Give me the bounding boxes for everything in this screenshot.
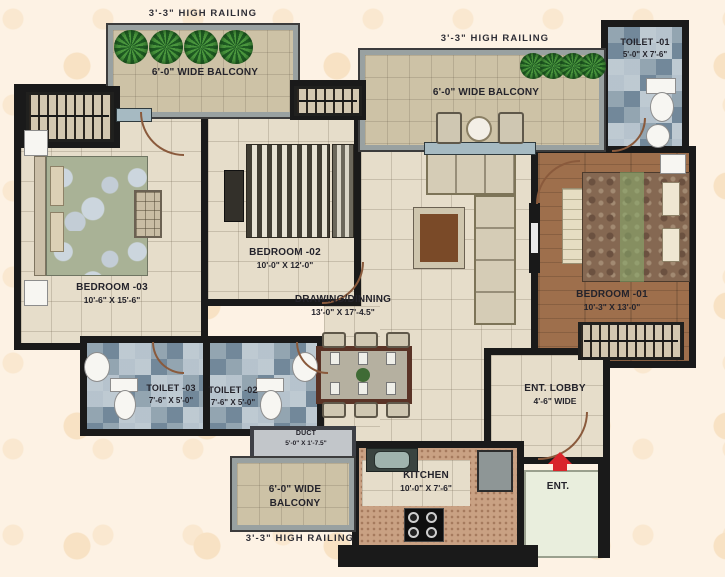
room-name: 6'-0" WIDE BALCONY <box>120 66 290 80</box>
bed-bedroom-02 <box>246 144 330 238</box>
stove-burner <box>408 527 419 538</box>
plate <box>330 382 340 395</box>
room-name: TOILET -01 <box>605 36 685 49</box>
room-name: 6'-0" WIDE <box>243 483 347 497</box>
room-name: DRAWING/DINNING <box>268 293 418 307</box>
label-duct: DUCT 5'-0" X 1'-7.5" <box>258 429 354 448</box>
stove-burner <box>426 527 437 538</box>
entrance-label: ENT. <box>528 480 588 494</box>
pillow <box>50 166 64 206</box>
wall-segment <box>338 545 538 567</box>
dresser <box>134 190 162 238</box>
wash-basin <box>646 124 670 148</box>
room-name: DUCT <box>258 429 354 439</box>
label-toilet-01: TOILET -01 5'-0" X 7'-6" <box>605 36 685 60</box>
balcony-round-table <box>466 116 492 142</box>
room-dims: 10'-6" X 15'-6" <box>37 295 187 307</box>
sofa-section <box>474 195 516 325</box>
entrance-arrow-icon <box>546 452 574 472</box>
plate <box>386 352 396 365</box>
plate <box>386 382 396 395</box>
label-bedroom-01: BEDROOM -01 10'-3" X 13'-0" <box>547 288 677 314</box>
label-balcony-top-mid: 6'-0" WIDE BALCONY <box>396 86 576 100</box>
bed-runner <box>620 172 644 282</box>
pillow <box>662 228 680 262</box>
room-name: BEDROOM -01 <box>547 288 677 302</box>
balcony-chair <box>436 112 462 144</box>
room-dims: 4'-6" WIDE <box>505 396 605 408</box>
wall-segment <box>598 462 610 558</box>
label-toilet-02: TOILET -02 7'-6" X 5'-0" <box>196 384 270 408</box>
wardrobe-bedroom-01 <box>578 322 684 360</box>
plant-icon <box>149 30 183 64</box>
dining-chair <box>354 402 378 418</box>
room-name: ENT. LOBBY <box>505 382 605 396</box>
label-balcony-top-left: 6'-0" WIDE BALCONY <box>120 66 290 80</box>
plant-icon <box>114 30 148 64</box>
railing-label-top-left: 3'-3" HIGH RAILING <box>118 8 288 19</box>
label-drawing-dining: DRAWING/DINNING 13'-0" X 17'-4.5" <box>268 293 418 319</box>
nightstand <box>24 130 48 156</box>
dining-chair <box>386 402 410 418</box>
dining-chair <box>386 332 410 348</box>
bedside-unit <box>660 154 686 174</box>
room-name: TOILET -02 <box>196 384 270 397</box>
sofa-section <box>426 153 516 195</box>
room-dims: 10'-0" X 7'-6" <box>366 483 486 495</box>
plate <box>358 382 368 395</box>
bed-headboard <box>34 156 46 276</box>
bed-side-unit <box>332 144 354 238</box>
wardrobe-bedroom-02 <box>294 86 362 116</box>
plant-icon <box>184 30 218 64</box>
wash-basin <box>84 352 110 382</box>
stove-burner <box>408 512 419 523</box>
plant-icon <box>219 30 253 64</box>
room-dims: 10'-0" X 12'-0" <box>210 260 360 272</box>
railing-label-bottom: 3'-3" HIGH RAILING <box>230 533 370 544</box>
label-ent-lobby: ENT. LOBBY 4'-6" WIDE <box>505 382 605 408</box>
room-name: 6'-0" WIDE BALCONY <box>396 86 576 100</box>
room-dims: 5'-0" X 1'-7.5" <box>258 439 354 448</box>
balcony-chair <box>498 112 524 144</box>
room-dims: 13'-0" X 17'-4.5" <box>268 307 418 319</box>
toilet-bowl <box>650 92 674 122</box>
tv-screen <box>531 223 538 253</box>
room-name: BEDROOM -03 <box>37 281 187 295</box>
table-centerpiece <box>356 368 370 382</box>
plate <box>330 352 340 365</box>
plate <box>358 352 368 365</box>
label-bedroom-03: BEDROOM -03 10'-6" X 15'-6" <box>37 281 187 307</box>
room-name: BALCONY <box>243 497 347 511</box>
stove-burner <box>426 512 437 523</box>
side-table <box>224 170 244 222</box>
dining-chair <box>354 332 378 348</box>
coffee-table <box>414 208 464 268</box>
room-dims: 5'-0" X 7'-6" <box>605 49 685 60</box>
pillow <box>662 182 680 216</box>
pillow <box>50 212 64 252</box>
plant-icon <box>580 53 606 79</box>
floor-plan: 3'-3" HIGH RAILING 3'-3" HIGH RAILING 3'… <box>0 0 725 577</box>
railing-label-top-mid: 3'-3" HIGH RAILING <box>395 33 595 44</box>
room-name: KITCHEN <box>366 469 486 483</box>
label-entrance: ENT. <box>528 480 588 494</box>
label-kitchen: KITCHEN 10'-0" X 7'-6" <box>366 469 486 495</box>
room-dims: 7'-6" X 5'-0" <box>196 397 270 408</box>
toilet-bowl <box>114 390 136 420</box>
label-balcony-bottom: 6'-0" WIDE BALCONY <box>243 483 347 511</box>
room-dims: 10'-3" X 13'-0" <box>547 302 677 314</box>
label-bedroom-02: BEDROOM -02 10'-0" X 12'-0" <box>210 246 360 272</box>
kitchen-sink-basin <box>374 451 410 469</box>
dining-chair <box>322 402 346 418</box>
room-name: BEDROOM -02 <box>210 246 360 260</box>
